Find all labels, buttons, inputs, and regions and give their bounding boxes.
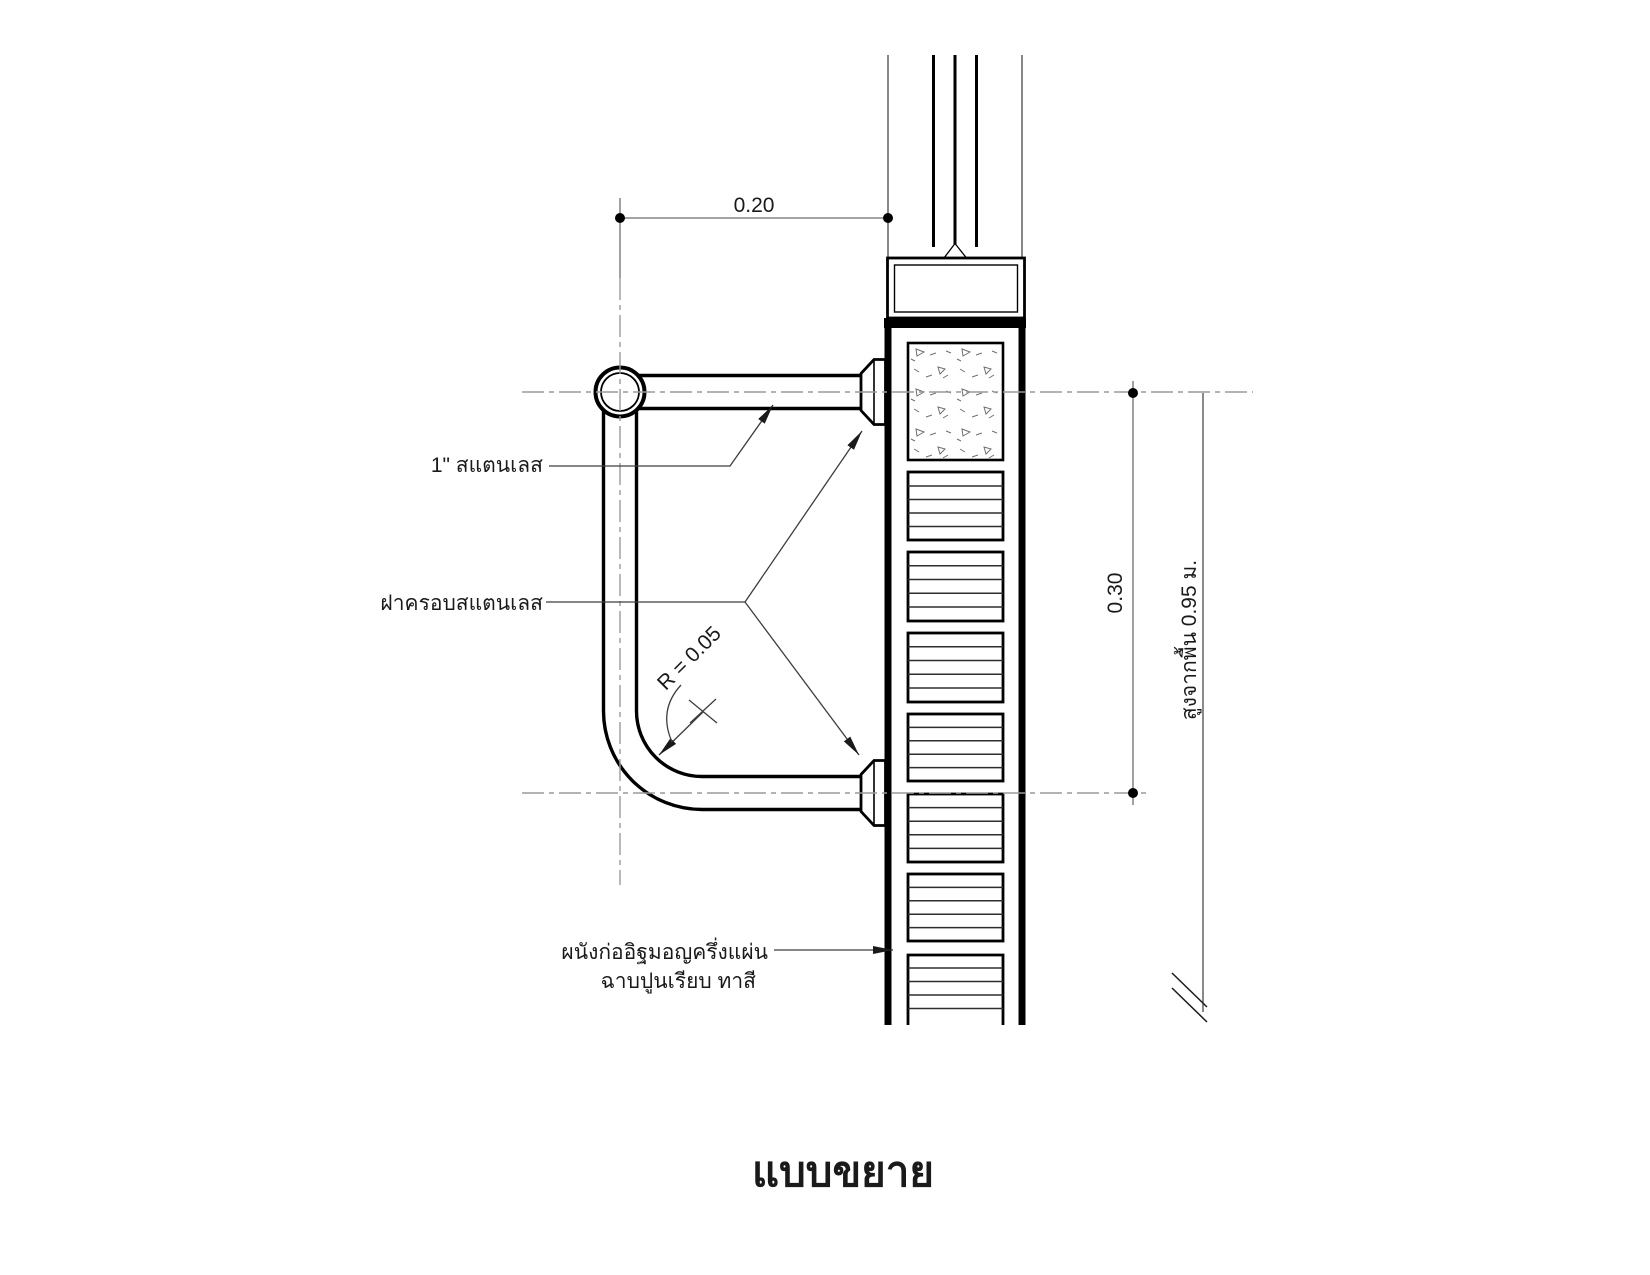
annotation-texts: 0.20 0.30 สูงจากพื้น 0.95 ม. R = 0.05 1"… xyxy=(380,194,1202,1195)
drawing-title: แบบขยาย xyxy=(752,1148,934,1195)
wall-top-band xyxy=(884,318,1026,328)
brick-block xyxy=(908,633,1003,702)
height-note-text: สูงจากพื้น 0.95 ม. xyxy=(1174,560,1202,720)
leader-cover-plate-top xyxy=(745,431,862,602)
concrete-lintel-block xyxy=(908,343,1003,460)
post-weld-triangle xyxy=(944,244,967,259)
leader-rail-size xyxy=(549,405,773,466)
brick-block xyxy=(908,794,1003,862)
handrail xyxy=(596,360,886,826)
drawing-sheet: 0.20 0.30 สูงจากพื้น 0.95 ม. R = 0.05 1"… xyxy=(0,0,1650,1275)
leader-bend-radius xyxy=(659,712,703,755)
brick-courses xyxy=(908,472,1003,1025)
brick-block-cut xyxy=(908,955,1003,1025)
dim-dot xyxy=(883,213,893,223)
break-mark xyxy=(1172,973,1207,1022)
cap-beam xyxy=(884,258,1026,328)
wall-section xyxy=(888,328,1022,1025)
dim-dot xyxy=(615,213,625,223)
dim-dot xyxy=(1128,788,1138,798)
cap-beam-outer xyxy=(888,258,1025,318)
dim-text-0-20: 0.20 xyxy=(734,194,775,217)
railing-post-lines xyxy=(934,55,977,247)
brick-block xyxy=(908,714,1003,781)
dim-text-0-30: 0.30 xyxy=(1104,573,1127,614)
wall-spec-label-line2: ฉาบปูนเรียบ ทาสี xyxy=(601,970,757,994)
post-above-wall xyxy=(888,55,1022,258)
dim-dot xyxy=(1128,388,1138,398)
radius-center-cross xyxy=(689,699,717,723)
rail-size-label: 1" สแตนเลส xyxy=(431,454,543,477)
brick-block xyxy=(908,874,1003,941)
rail-bend-outer-arc xyxy=(604,711,703,810)
brick-block xyxy=(908,552,1003,621)
wall-spec-label-line1: ผนังก่ออิฐมอญครึ่งแผ่น xyxy=(561,937,768,964)
radius-dim-text: R = 0.05 xyxy=(653,622,726,695)
leader-cover-plate-bottom xyxy=(745,602,859,755)
detail-drawing: 0.20 0.30 สูงจากพื้น 0.95 ม. R = 0.05 1"… xyxy=(0,0,1650,1275)
leader-lines xyxy=(546,405,893,950)
brick-block xyxy=(908,472,1003,540)
cover-plate-label: ฝาครอบสแตนเลส xyxy=(380,592,543,615)
